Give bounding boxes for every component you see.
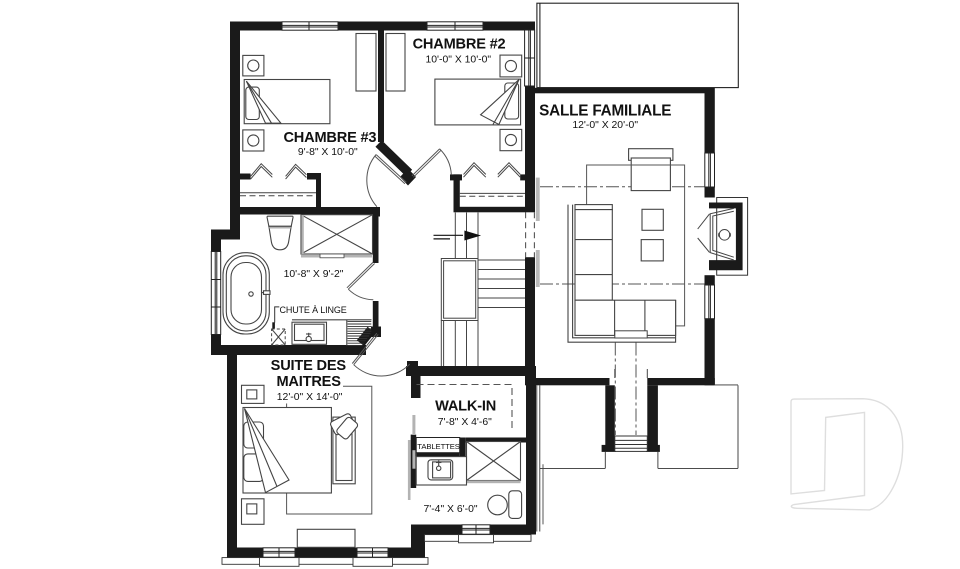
svg-text:12'-0" X 14'-0": 12'-0" X 14'-0": [277, 392, 343, 403]
svg-text:7'-4" X 6'-0": 7'-4" X 6'-0": [423, 504, 477, 515]
svg-text:CHAMBRE #3: CHAMBRE #3: [283, 130, 376, 146]
svg-text:12'-0" X 20'-0": 12'-0" X 20'-0": [572, 120, 638, 131]
svg-text:CHAMBRE #2: CHAMBRE #2: [413, 36, 506, 52]
svg-text:TABLETTES: TABLETTES: [417, 442, 460, 451]
svg-text:7'-8" X 4'-6": 7'-8" X 4'-6": [438, 417, 492, 428]
svg-text:WALK-IN: WALK-IN: [435, 399, 496, 415]
svg-text:10'-8" X 9'-2": 10'-8" X 9'-2": [284, 269, 344, 280]
svg-text:MAITRES: MAITRES: [276, 374, 341, 390]
svg-text:SUITE DES: SUITE DES: [271, 358, 347, 374]
svg-text:SALLE FAMILIALE: SALLE FAMILIALE: [539, 102, 671, 119]
svg-text:CHUTE À LINGE: CHUTE À LINGE: [280, 305, 347, 315]
svg-text:9'-8" X 10'-0": 9'-8" X 10'-0": [298, 147, 358, 158]
svg-text:10'-0" X 10'-0": 10'-0" X 10'-0": [425, 54, 491, 65]
